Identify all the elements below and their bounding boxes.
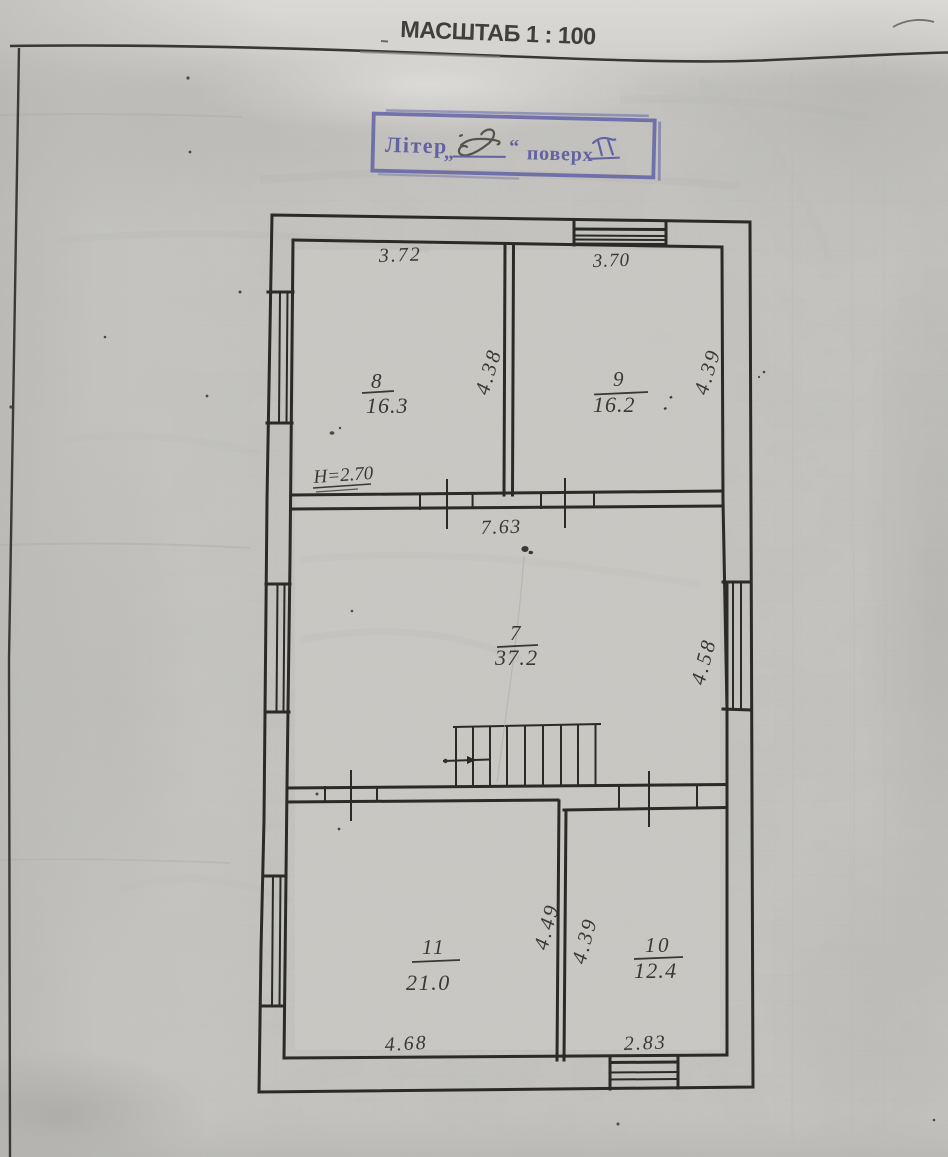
svg-text:9: 9 bbox=[613, 367, 624, 391]
svg-text:11: 11 bbox=[422, 935, 445, 959]
svg-text:8: 8 bbox=[371, 369, 382, 393]
svg-text:2.83: 2.83 bbox=[623, 1032, 667, 1055]
svg-text:„: „ bbox=[444, 141, 455, 163]
svg-text:7.63: 7.63 bbox=[480, 516, 522, 539]
svg-text:16.2: 16.2 bbox=[593, 392, 636, 417]
svg-text:21.0: 21.0 bbox=[406, 970, 451, 995]
svg-text:“: “ bbox=[509, 136, 520, 158]
svg-text:10: 10 bbox=[645, 933, 671, 957]
svg-text:37.2: 37.2 bbox=[494, 645, 538, 670]
svg-text:поверх: поверх bbox=[527, 142, 594, 166]
svg-text:7: 7 bbox=[510, 621, 522, 645]
svg-text:3.70: 3.70 bbox=[591, 250, 630, 272]
svg-text:12.4: 12.4 bbox=[634, 958, 677, 983]
svg-text:3.72: 3.72 bbox=[377, 244, 422, 268]
svg-text:16.3: 16.3 bbox=[366, 393, 409, 418]
svg-text:Літер: Літер bbox=[385, 132, 448, 159]
svg-text:4.68: 4.68 bbox=[384, 1032, 428, 1056]
